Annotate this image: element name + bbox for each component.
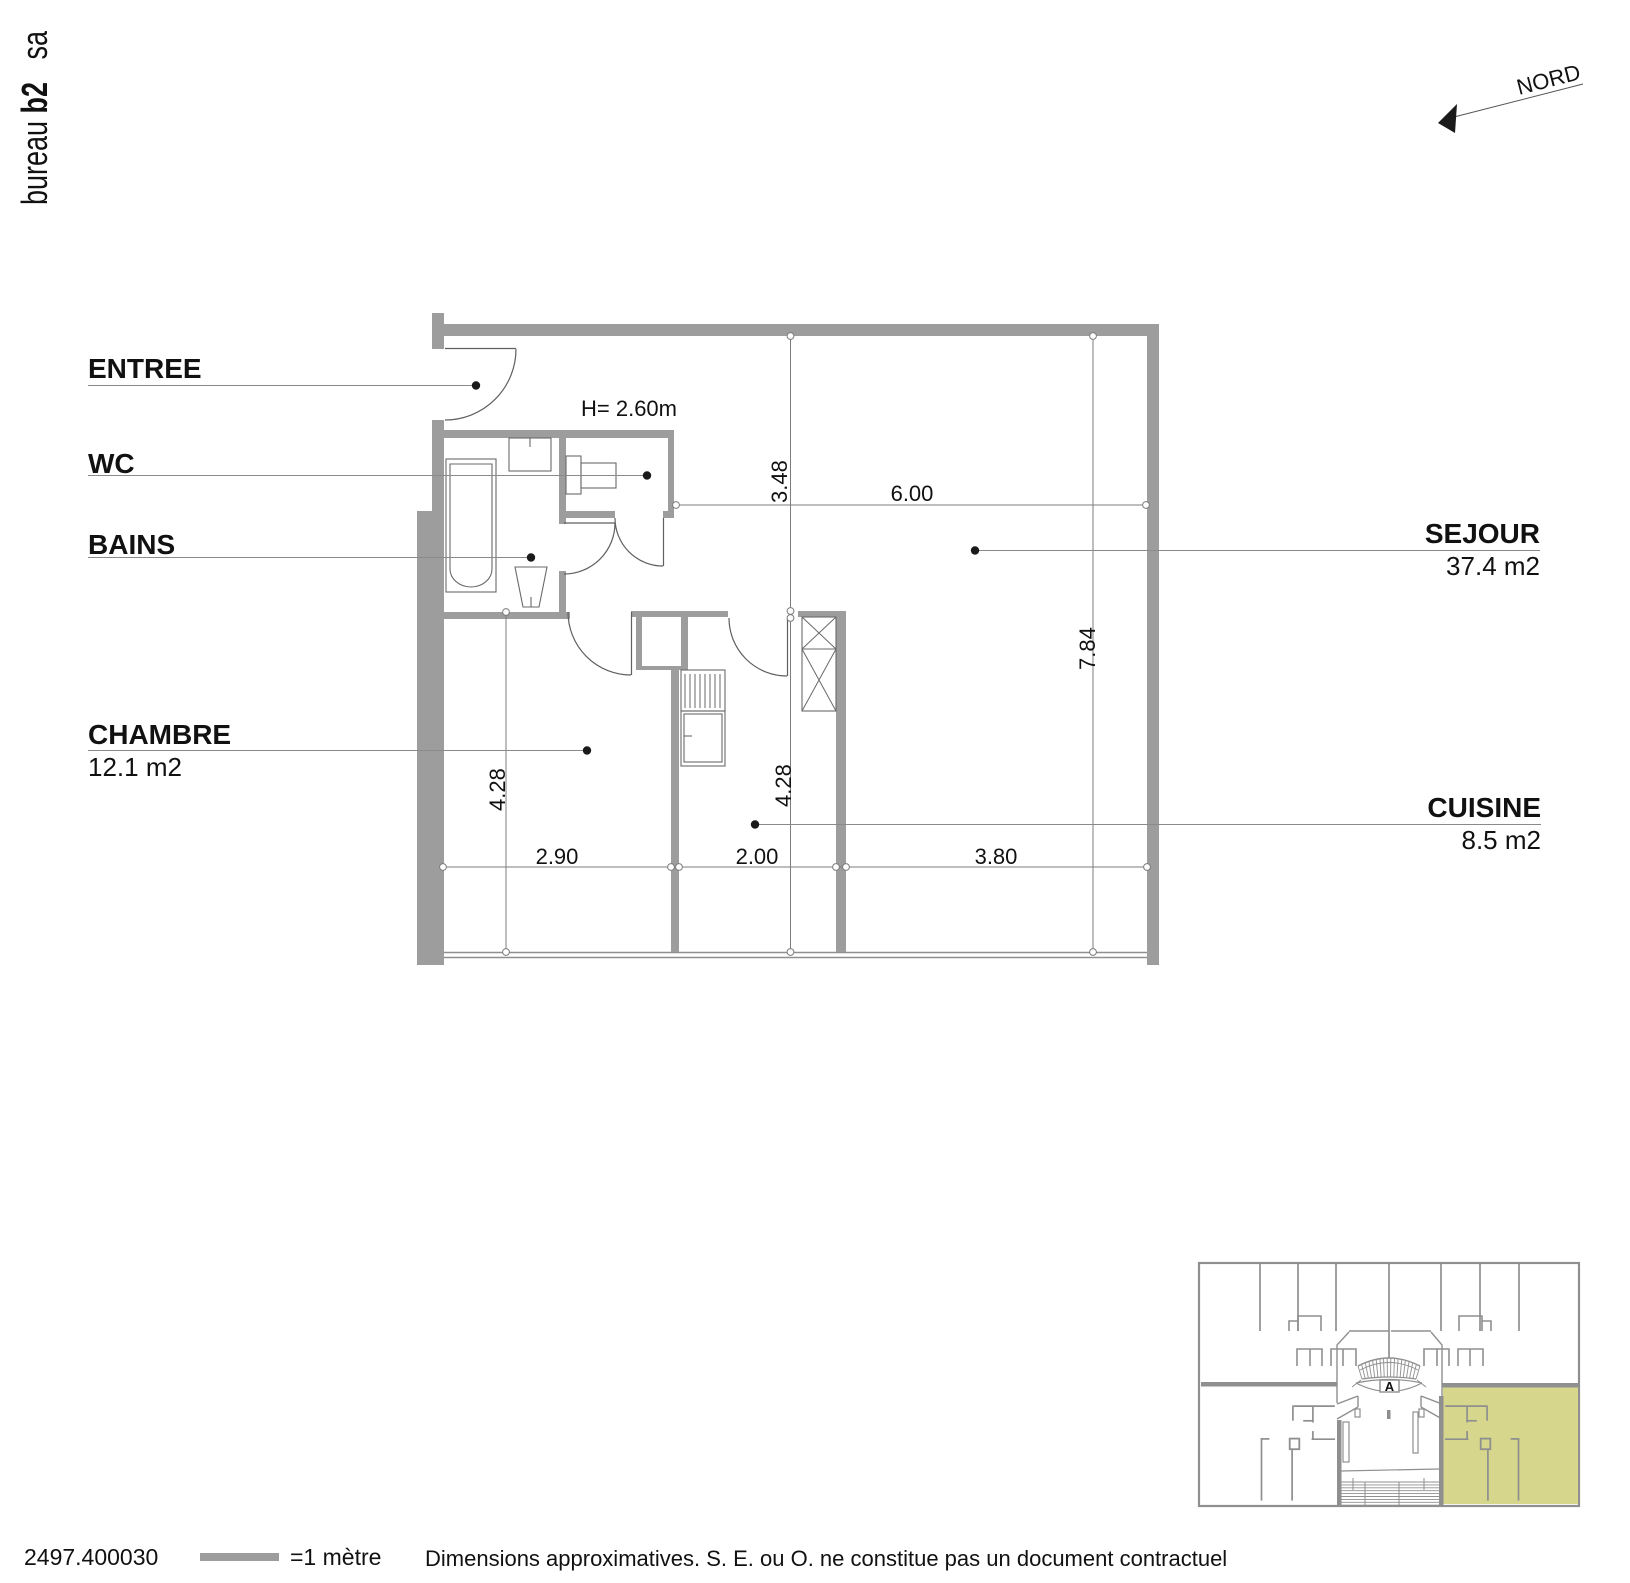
svg-text:12.1 m2: 12.1 m2 (88, 752, 182, 782)
svg-text:37.4 m2: 37.4 m2 (1446, 551, 1540, 581)
svg-text:CUISINE: CUISINE (1427, 792, 1541, 823)
svg-text:=1 mètre: =1 mètre (290, 1544, 381, 1570)
svg-text:ENTREE: ENTREE (88, 353, 202, 384)
svg-text:A: A (1385, 1379, 1395, 1394)
svg-text:2.90: 2.90 (536, 844, 579, 869)
svg-text:3.48: 3.48 (767, 460, 792, 503)
svg-text:4.28: 4.28 (771, 764, 796, 807)
svg-text:8.5 m2: 8.5 m2 (1462, 825, 1542, 855)
svg-text:bureau b2 sa: bureau b2 sa (14, 31, 55, 205)
svg-text:4.28: 4.28 (485, 768, 510, 811)
svg-text:Dimensions approximatives. S.: Dimensions approximatives. S. E. ou O. n… (425, 1546, 1227, 1571)
svg-text:2497.400030: 2497.400030 (24, 1544, 158, 1570)
svg-text:7.84: 7.84 (1075, 627, 1100, 670)
svg-text:H= 2.60m: H= 2.60m (581, 396, 677, 421)
svg-text:WC: WC (88, 448, 135, 479)
svg-text:SEJOUR: SEJOUR (1425, 518, 1540, 549)
svg-text:2.00: 2.00 (736, 844, 779, 869)
svg-text:CHAMBRE: CHAMBRE (88, 719, 231, 750)
svg-text:3.80: 3.80 (975, 844, 1018, 869)
svg-text:BAINS: BAINS (88, 529, 175, 560)
svg-text:6.00: 6.00 (891, 481, 934, 506)
